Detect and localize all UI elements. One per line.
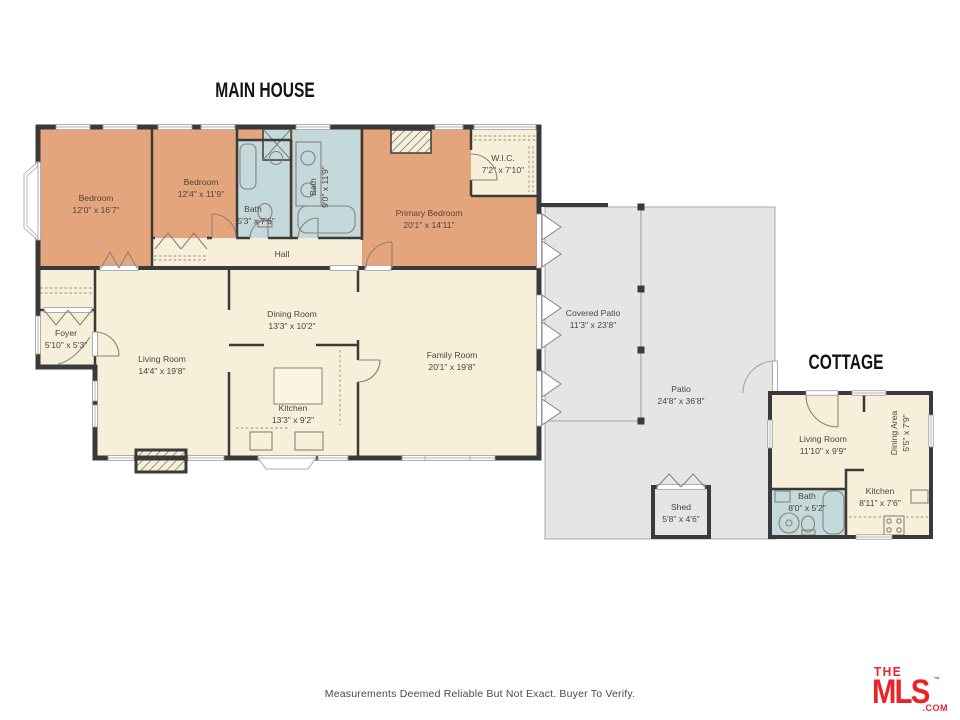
cottage-title: COTTAGE [809,350,884,374]
cottage-door-opening [806,391,838,396]
fireplace [136,450,186,472]
patio-post [638,286,645,293]
kitchen-bay-window [258,458,316,469]
bay-window [24,162,38,240]
main-house-title-text: MAIN HOUSE [215,78,314,102]
room-label-foyer: Foyer [55,328,77,338]
room-dims-hall-bath: 5'3" x 7'6" [237,216,275,226]
patio-door-opening [537,371,542,426]
cottage-title-text: COTTAGE [809,350,884,374]
main-house-title: MAIN HOUSE [215,78,314,102]
patio-gate-opening [773,361,778,393]
room-dims-patio: 24'8" x 36'8" [657,396,704,406]
room-label-covered-patio: Covered Patio [566,308,621,318]
room-label-dining-room: Dining Room [267,309,317,319]
room-dims-cottage-living: 11'10" x 9'9" [800,446,847,456]
room-dims-shed: 5'8" x 4'6" [662,514,700,524]
measurement-disclaimer: Measurements Deemed Reliable But Not Exa… [0,688,960,700]
room-dims-family-room: 20'1" x 19'8" [428,362,475,372]
room-label-hall-bath: Bath [244,204,262,214]
room-dims-cottage-kitchen: 8'11" x 7'6" [859,498,901,508]
room-dims-covered-patio: 11'3" x 23'8" [570,320,617,330]
room-dims-living-room: 14'4" x 19'8" [138,366,185,376]
room-label-bedroom-2: Bedroom [184,177,219,187]
room-label-shed: Shed [671,502,691,512]
trademark-symbol: ™ [934,678,940,683]
room-dims-bedroom-2: 12'4" x 11'9" [178,189,225,199]
room-dims-main-bath: 9'0" x 11'9" [320,166,330,208]
room-dims-kitchen: 13'3" x 9'2" [272,415,314,425]
room-dims-dining-room: 13'3" x 10'2" [268,321,315,331]
patio-door-opening [537,295,542,349]
patio-door-opening [537,214,542,268]
room-dims-foyer: 5'10" x 5'3" [45,340,87,350]
room-label-primary-bedroom: Primary Bedroom [396,208,463,218]
room-label-wic: W.I.C. [491,153,514,163]
patio-post [638,204,645,211]
patio-post [638,347,645,354]
kitchen-island [274,368,322,404]
patio-post [638,418,645,425]
door-opening [92,332,97,356]
floor-plan-drawing: MAIN HOUSE COTTAGE Bedroom 12'0" x 16'7"… [0,0,960,720]
room-label-cottage-living: Living Room [799,434,847,444]
room-dims-cottage-bath: 8'0" x 5'2" [788,503,826,513]
room-label-hall: Hall [275,249,290,259]
room-label-main-bath: Bath [308,178,318,196]
hall-opening [330,265,358,270]
primary-closet-hatch [391,130,431,153]
room-label-cottage-dining: Dining Area [889,411,899,456]
room-label-cottage-bath: Bath [798,491,816,501]
room-dims-primary-bedroom: 20'1" x 14'11" [403,220,454,230]
room-label-cottage-kitchen: Kitchen [866,486,895,496]
mls-logo: THE MLS ™ .COM [872,666,948,712]
room-label-living-room: Living Room [138,354,186,364]
room-dims-cottage-dining: 5'5" x 7'9" [901,414,911,452]
room-dims-bedroom-1: 12'0" x 16'7" [72,205,119,215]
mls-logo-mls: MLS [872,677,929,708]
room-label-family-room: Family Room [427,350,478,360]
room-dims-wic: 7'2" x 7'10" [482,165,524,175]
cottage [768,391,934,540]
hall-fill [152,238,362,268]
floor-plan-page: MAIN HOUSE COTTAGE Bedroom 12'0" x 16'7"… [0,0,960,720]
room-label-bedroom-1: Bedroom [79,193,114,203]
door-opening [365,265,391,270]
room-label-patio: Patio [671,384,691,394]
room-label-kitchen: Kitchen [279,403,308,413]
